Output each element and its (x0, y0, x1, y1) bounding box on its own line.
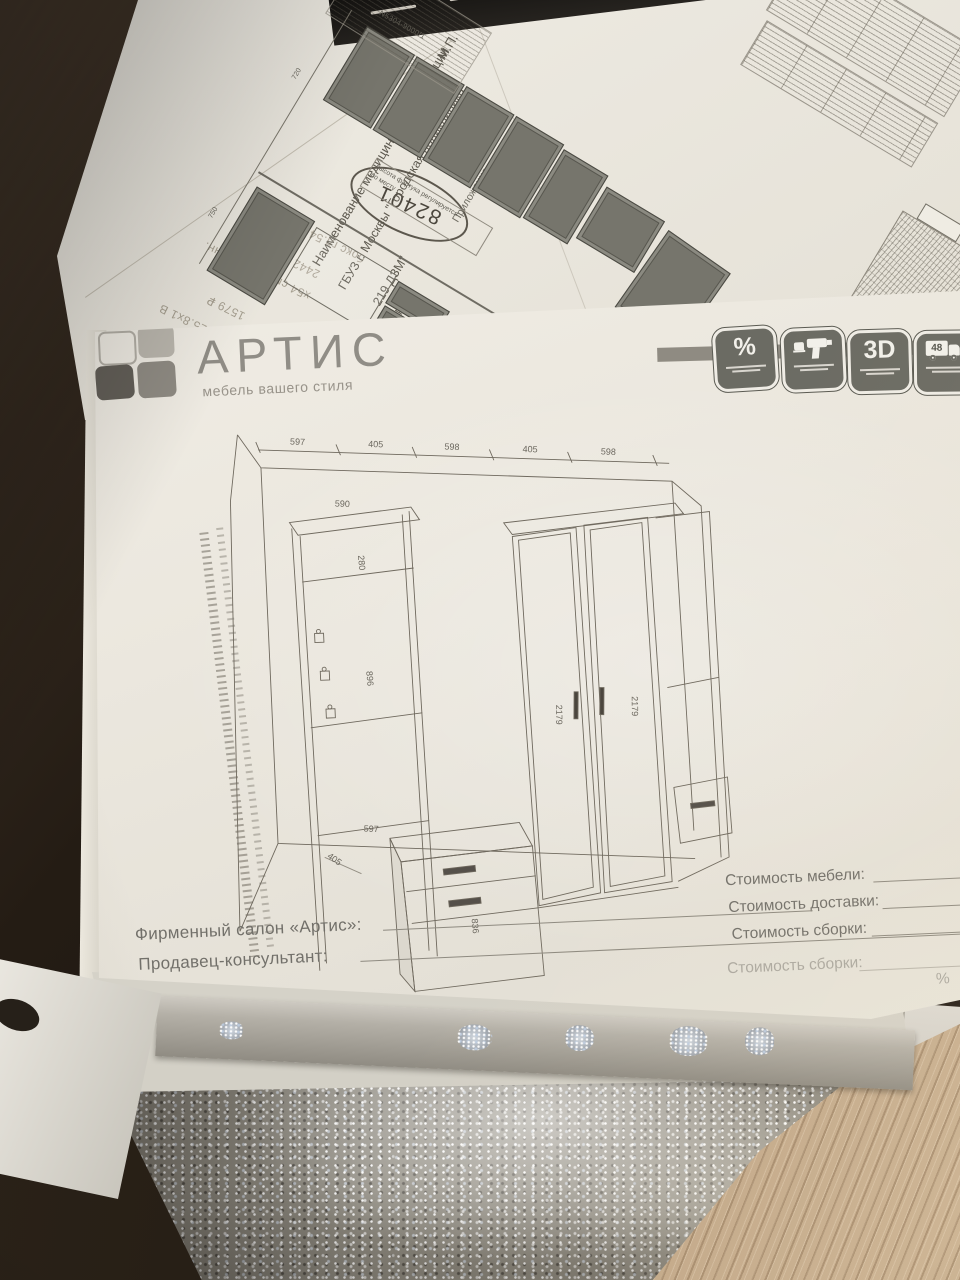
cost-delivery-line (883, 898, 960, 909)
badge-caption (860, 368, 900, 371)
badge-caption (932, 371, 960, 373)
holo-spot (668, 1025, 709, 1057)
desk-photo-scene: 82401 бокс гл.54.5 дуб 2442 ₽ х54 см дуб… (0, 0, 960, 1280)
dim-mirror-height: 896 (364, 671, 375, 687)
dim-inner-width: 597 (364, 824, 379, 834)
truck-48h-icon: 48 (926, 338, 960, 364)
cost-furniture-line (873, 871, 960, 883)
badge-caption (800, 368, 828, 371)
brand-name: АРТИС (196, 321, 395, 385)
dim-left-door: 2179 (554, 705, 564, 725)
dim-405: 405 (368, 439, 383, 449)
3d-icon: 3D (863, 332, 896, 367)
holo-spot (218, 1021, 245, 1040)
holo-spot (456, 1024, 493, 1052)
dim-597: 597 (290, 436, 305, 446)
binder-hole (0, 993, 44, 1037)
logo-square-mid (137, 360, 177, 398)
badge-caption (866, 372, 894, 375)
dim-right-door: 2179 (630, 696, 640, 716)
badge-caption (732, 369, 760, 373)
dim-598: 598 (444, 441, 459, 451)
dim-shelf-width: 590 (335, 499, 350, 509)
holo-spot (744, 1027, 775, 1056)
kitchen-dim-750: 750 (207, 206, 219, 220)
dim-598b: 598 (601, 446, 616, 456)
dim-bracket: 405 (326, 851, 344, 868)
percent-icon: % (733, 329, 757, 364)
holo-spot (564, 1024, 595, 1051)
kitchen-dim-720: 720 (291, 67, 303, 81)
assembly-badge (780, 326, 847, 393)
bleed-percent: % (935, 970, 950, 989)
truck-48-label: 48 (926, 341, 948, 356)
sheet-content: АРТИС мебель вашего стиля % 3D (100, 300, 960, 1039)
dim-405b: 405 (522, 444, 537, 454)
logo-square-outline (98, 330, 138, 366)
drill-icon (793, 334, 834, 364)
badge-caption (926, 366, 960, 368)
logo-square-dark (95, 364, 136, 401)
design-3d-badge: 3D (847, 329, 913, 395)
discount-badge: % (712, 325, 780, 393)
delivery-badge: 48 (914, 330, 960, 395)
hallway-furniture-drawing: 597 405 598 405 598 590 280 896 597 405 … (108, 387, 755, 1015)
dim-upper-section: 280 (356, 555, 367, 571)
